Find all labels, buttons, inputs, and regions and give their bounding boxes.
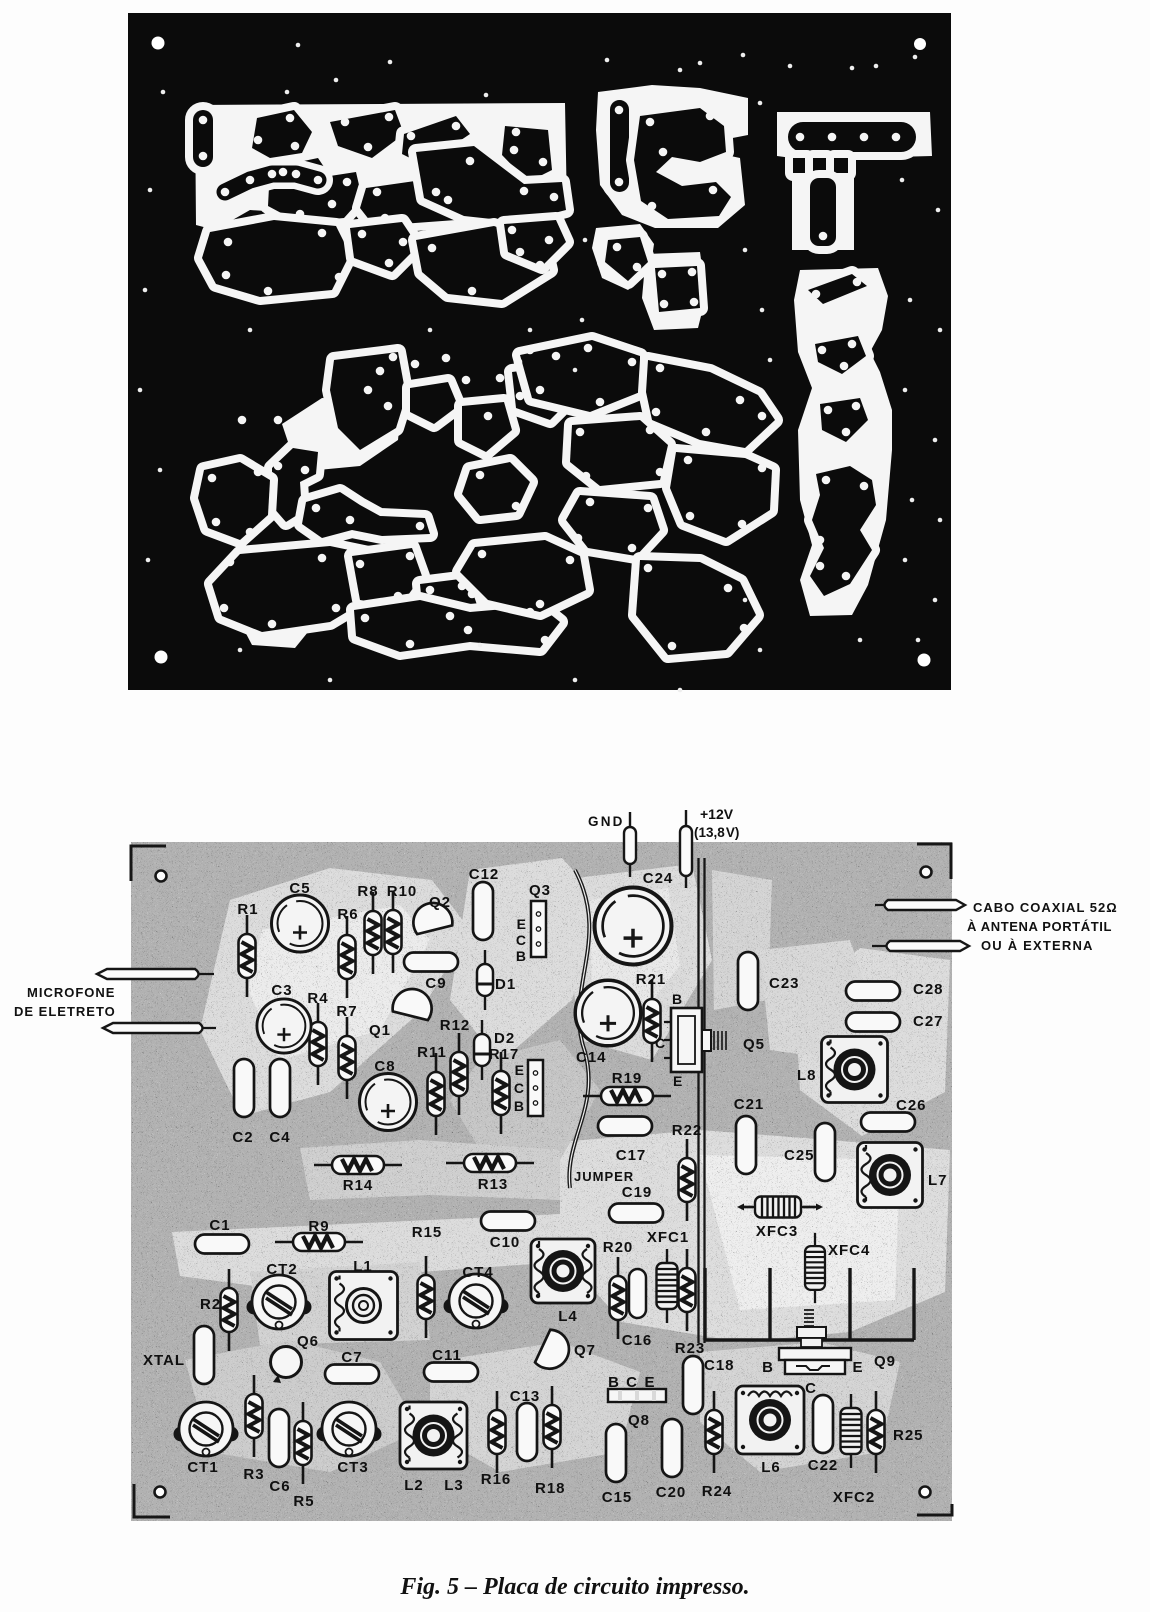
svg-text:B: B [762, 1359, 774, 1376]
svg-text:Q1: Q1 [369, 1022, 391, 1039]
svg-text:E: E [515, 1062, 524, 1078]
svg-text:C9: C9 [425, 975, 446, 992]
svg-text:C: C [516, 932, 526, 948]
svg-text:B: B [672, 991, 682, 1007]
svg-text:XTAL: XTAL [143, 1352, 185, 1369]
svg-text:R22: R22 [672, 1122, 703, 1139]
svg-text:Q9: Q9 [874, 1353, 896, 1370]
svg-text:L2: L2 [404, 1477, 424, 1494]
svg-text:L4: L4 [558, 1308, 578, 1325]
svg-text:R24: R24 [702, 1483, 733, 1500]
svg-text:CT2: CT2 [266, 1261, 297, 1278]
svg-text:C20: C20 [656, 1484, 687, 1501]
svg-text:C11: C11 [432, 1347, 462, 1364]
svg-text:C16: C16 [622, 1332, 653, 1349]
svg-text:MICROFONE: MICROFONE [27, 985, 115, 1000]
svg-text:R14: R14 [343, 1177, 374, 1194]
svg-text:R15: R15 [412, 1224, 443, 1241]
svg-text:R2: R2 [200, 1296, 221, 1313]
svg-text:E: E [644, 1374, 655, 1391]
svg-text:C22: C22 [808, 1457, 839, 1474]
svg-text:C24: C24 [643, 870, 674, 887]
svg-text:R7: R7 [336, 1003, 357, 1020]
svg-text:JUMPER: JUMPER [574, 1169, 634, 1184]
svg-text:Q3: Q3 [529, 882, 551, 899]
svg-text:R4: R4 [307, 990, 328, 1007]
svg-text:R16: R16 [481, 1471, 512, 1488]
svg-text:XFC2: XFC2 [833, 1489, 875, 1506]
svg-text:C: C [514, 1080, 524, 1096]
svg-text:B: B [608, 1374, 620, 1391]
svg-text:R19: R19 [612, 1070, 643, 1087]
svg-text:C15: C15 [602, 1489, 633, 1506]
svg-text:Q7: Q7 [574, 1342, 596, 1359]
svg-text:R10: R10 [387, 883, 418, 900]
svg-text:R13: R13 [478, 1176, 509, 1193]
svg-text:D2: D2 [494, 1030, 515, 1047]
svg-text:GND: GND [588, 814, 625, 829]
svg-text:+12V: +12V [700, 806, 734, 822]
svg-text:R12: R12 [440, 1017, 471, 1034]
svg-text:XFC1: XFC1 [647, 1229, 689, 1246]
svg-text:R6: R6 [337, 906, 358, 923]
svg-text:C8: C8 [374, 1058, 395, 1075]
svg-text:(13,8 V): (13,8 V) [694, 825, 739, 840]
svg-text:R17: R17 [489, 1046, 520, 1063]
svg-text:B: B [514, 1098, 524, 1114]
svg-text:DE ELETRETO: DE ELETRETO [14, 1004, 116, 1019]
svg-text:C: C [805, 1380, 817, 1397]
svg-text:R11: R11 [417, 1044, 447, 1061]
svg-text:C2: C2 [232, 1129, 253, 1146]
svg-text:C21: C21 [734, 1096, 765, 1113]
svg-text:C4: C4 [269, 1129, 290, 1146]
svg-text:C: C [655, 1035, 665, 1051]
svg-text:C5: C5 [289, 880, 310, 897]
svg-text:L3: L3 [444, 1477, 464, 1494]
svg-text:XFC3: XFC3 [756, 1223, 798, 1240]
svg-text:L1: L1 [353, 1258, 373, 1275]
svg-text:E: E [517, 916, 526, 932]
svg-text:R8: R8 [357, 883, 378, 900]
svg-text:R9: R9 [308, 1218, 329, 1235]
svg-text:CT1: CT1 [187, 1459, 218, 1476]
svg-text:R1: R1 [237, 901, 258, 918]
svg-text:C25: C25 [784, 1147, 815, 1164]
svg-text:E: E [852, 1359, 863, 1376]
svg-text:XFC4: XFC4 [828, 1242, 870, 1259]
svg-text:Q8: Q8 [628, 1412, 650, 1429]
svg-text:R21: R21 [636, 971, 667, 988]
svg-text:C28: C28 [913, 981, 944, 998]
svg-text:R3: R3 [243, 1466, 264, 1483]
svg-text:C7: C7 [341, 1349, 362, 1366]
svg-text:R20: R20 [603, 1239, 634, 1256]
svg-text:C: C [626, 1374, 638, 1391]
svg-text:OU À EXTERNA: OU À EXTERNA [981, 938, 1094, 953]
svg-text:C12: C12 [469, 866, 500, 883]
svg-text:Q2: Q2 [429, 894, 451, 911]
svg-text:C10: C10 [490, 1234, 521, 1251]
svg-text:Fig. 5 – Placa de circuito imp: Fig. 5 – Placa de circuito impresso. [399, 1574, 749, 1600]
svg-text:C19: C19 [622, 1184, 653, 1201]
svg-text:R18: R18 [535, 1480, 566, 1497]
svg-text:C26: C26 [896, 1097, 927, 1114]
svg-text:Q6: Q6 [297, 1333, 319, 1350]
svg-text:D1: D1 [495, 976, 516, 993]
svg-text:B: B [516, 948, 526, 964]
svg-text:À ANTENA PORTÁTIL: À ANTENA PORTÁTIL [967, 919, 1112, 934]
svg-text:C14: C14 [576, 1049, 607, 1066]
svg-text:C23: C23 [769, 975, 800, 992]
svg-text:C6: C6 [269, 1478, 290, 1495]
svg-text:C17: C17 [616, 1147, 647, 1164]
svg-text:CT3: CT3 [337, 1459, 368, 1476]
svg-text:L6: L6 [761, 1459, 781, 1476]
svg-text:C13: C13 [510, 1388, 541, 1405]
svg-text:R23: R23 [675, 1340, 706, 1357]
svg-text:E: E [673, 1073, 682, 1089]
svg-text:R25: R25 [893, 1427, 924, 1444]
svg-text:C1: C1 [209, 1217, 230, 1234]
svg-text:L8: L8 [797, 1067, 817, 1084]
svg-text:L7: L7 [928, 1172, 948, 1189]
svg-text:C3: C3 [271, 982, 292, 999]
svg-text:CABO COAXIAL 52Ω: CABO COAXIAL 52Ω [973, 900, 1118, 915]
svg-text:C18: C18 [704, 1357, 735, 1374]
svg-text:CT4: CT4 [462, 1264, 493, 1281]
svg-text:R5: R5 [293, 1493, 314, 1510]
svg-text:C27: C27 [913, 1013, 944, 1030]
svg-text:Q5: Q5 [743, 1036, 765, 1053]
